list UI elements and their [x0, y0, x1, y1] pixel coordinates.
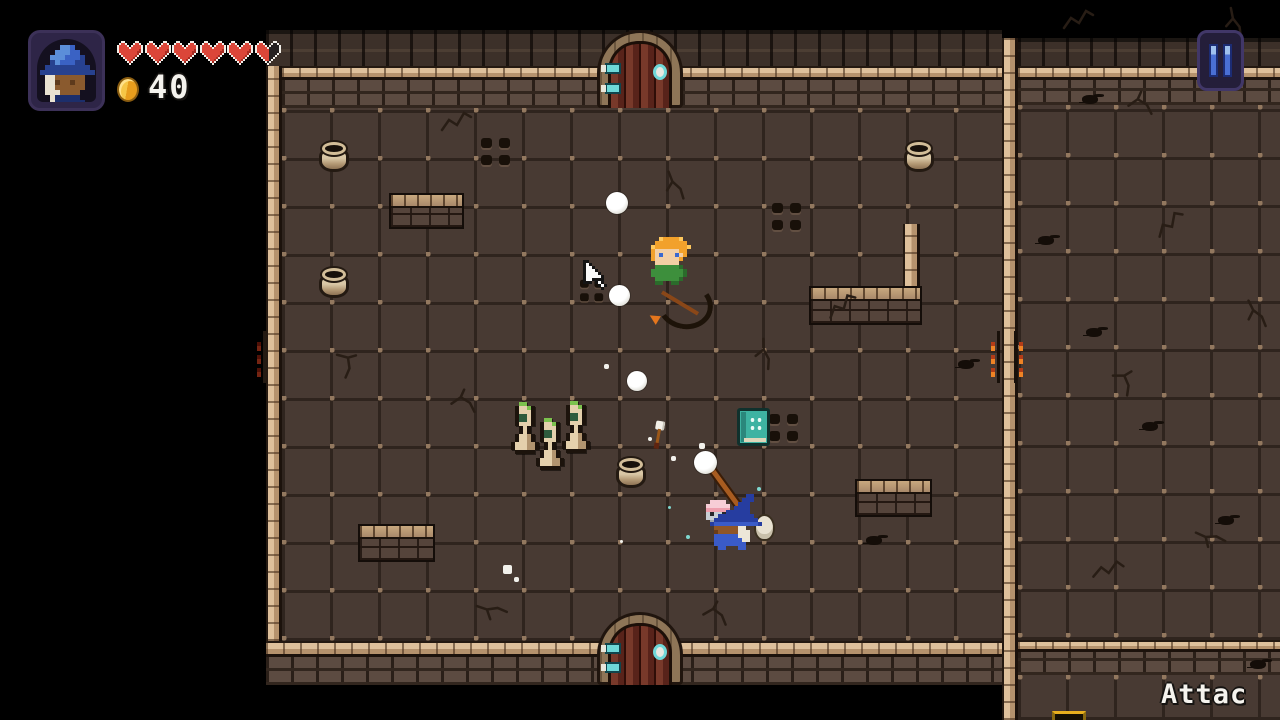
door-hinge-icon [605, 662, 621, 673]
white-particle [620, 540, 623, 543]
floor-crack [1123, 87, 1161, 120]
white-particle [699, 443, 705, 449]
wall-bricks [857, 494, 930, 515]
torch-bracket [263, 331, 266, 383]
floor-grate [769, 414, 799, 441]
game-screen: 40 Attac [0, 0, 1280, 720]
enemy-archer[interactable] [641, 237, 721, 337]
teal-spark-particle [757, 487, 761, 491]
door-hinge-icon [605, 63, 621, 74]
teal-spark-particle [686, 535, 690, 539]
wall-torch [256, 331, 272, 387]
green-statue [562, 401, 590, 453]
pause-icon [1223, 44, 1232, 77]
white-particle [604, 364, 609, 369]
low-brick-wall [855, 479, 932, 517]
floor-grate [772, 203, 802, 230]
mouse-cursor-icon [583, 257, 607, 290]
green-statue [536, 418, 564, 470]
white-particle [648, 437, 652, 441]
floor-debris [866, 536, 882, 545]
wall-cap [360, 526, 433, 539]
wall-ledge-v [903, 224, 920, 288]
door-north[interactable] [597, 30, 683, 108]
door-hinge-icon [605, 643, 621, 654]
wall-floor [1018, 105, 1280, 640]
chest-edge [1052, 711, 1086, 720]
floor-debris [1038, 236, 1054, 245]
white-particle [671, 456, 676, 461]
torch-bracket [1014, 331, 1017, 383]
floor-crack [440, 108, 474, 136]
floor-debris [1250, 660, 1266, 669]
wall-torch [991, 331, 1023, 387]
floor-crack [1062, 6, 1096, 34]
book-cover-pattern [749, 416, 763, 434]
dungeon-scene [0, 0, 1280, 720]
pot-mouth [322, 268, 346, 281]
archer-body [647, 237, 695, 285]
floor-debris [1142, 422, 1158, 431]
torch-flame-icon [1019, 339, 1023, 377]
snowball-projectile [609, 285, 630, 306]
wall-bricks [391, 208, 462, 227]
torch-flame-icon [991, 339, 995, 377]
torch-flame-icon [257, 341, 261, 377]
floor-grate [481, 138, 511, 165]
floor-debris [1082, 95, 1098, 104]
clay-pot [614, 457, 648, 488]
wall-bricks [360, 539, 433, 560]
white-particle [514, 577, 519, 582]
white-particle [503, 565, 512, 574]
wall-cap [391, 195, 462, 208]
door-hinge-icon [605, 83, 621, 94]
green-statue [511, 402, 539, 454]
teal-spark-particle [668, 506, 671, 509]
torch-bracket [997, 331, 1000, 383]
low-brick-wall [358, 524, 435, 562]
spellbook-item [737, 408, 770, 446]
floor-debris [1218, 516, 1234, 525]
snowball-projectile [606, 192, 628, 214]
arrow-tip [654, 442, 660, 449]
wall-wall-face [1018, 652, 1280, 675]
wall-ledge-h [1018, 640, 1280, 652]
low-brick-wall [389, 193, 464, 229]
door-handle-icon [653, 644, 667, 660]
clay-pot [317, 141, 351, 172]
pause-button[interactable] [1197, 30, 1244, 91]
pause-icon [1209, 44, 1218, 77]
door-south[interactable] [597, 612, 683, 685]
clay-pot [902, 141, 936, 172]
book-pages [744, 438, 766, 442]
pot-mouth [907, 142, 931, 155]
snowball-projectile [627, 371, 647, 391]
wall-cap [857, 481, 930, 494]
player-wizard [710, 492, 786, 558]
wizard-body [710, 494, 762, 550]
floor-crack [1091, 555, 1127, 586]
clay-pot [317, 267, 351, 298]
snowball-projectile [694, 451, 717, 474]
floor-crack [446, 385, 484, 418]
pot-mouth [322, 142, 346, 155]
floor-debris [958, 360, 974, 369]
pot-mouth [619, 458, 643, 471]
floor-debris [1086, 328, 1102, 337]
